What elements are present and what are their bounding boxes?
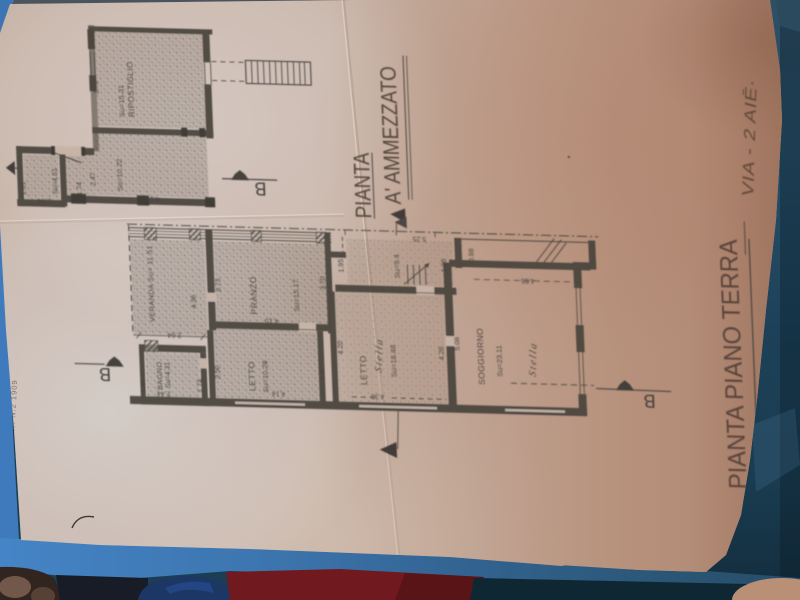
- svg-text:Su=4.31: Su=4.31: [164, 362, 172, 389]
- svg-text:Su=10.28: Su=10.28: [260, 360, 270, 393]
- svg-text:1.86: 1.86: [441, 259, 449, 273]
- svg-text:2.47: 2.47: [90, 172, 98, 186]
- svg-text:1.81: 1.81: [140, 379, 148, 393]
- svg-text:B: B: [643, 391, 656, 411]
- svg-text:4.14: 4.14: [272, 390, 286, 397]
- svg-text:4.20: 4.20: [337, 341, 345, 355]
- svg-text:5.08: 5.08: [454, 337, 462, 351]
- svg-text:4.26: 4.26: [439, 346, 447, 360]
- svg-text:2.47: 2.47: [319, 366, 327, 380]
- svg-text:4.15: 4.15: [265, 317, 279, 324]
- svg-text:Su=15.31: Su=15.31: [116, 85, 126, 118]
- svg-text:Stella: Stella: [528, 340, 540, 378]
- svg-text:1.74: 1.74: [197, 379, 205, 393]
- svg-text:Su=23.11: Su=23.11: [494, 345, 504, 377]
- svg-text:Su=18.48: Su=18.48: [389, 345, 399, 378]
- svg-text:2.44: 2.44: [37, 197, 51, 204]
- svg-text:4.55: 4.55: [521, 277, 535, 284]
- svg-text:4.36: 4.36: [191, 295, 199, 309]
- svg-text:1.74: 1.74: [76, 182, 84, 196]
- svg-text:PRANZO: PRANZO: [248, 276, 260, 315]
- svg-text:3.70: 3.70: [93, 80, 101, 94]
- svg-text:Su=9.4: Su=9.4: [392, 254, 402, 278]
- svg-text:B: B: [99, 364, 112, 384]
- svg-text:1.61: 1.61: [20, 181, 28, 195]
- svg-text:4.36: 4.36: [371, 392, 385, 399]
- svg-text:Stella: Stella: [374, 336, 386, 374]
- svg-text:0.98: 0.98: [469, 248, 477, 262]
- svg-text:B: B: [254, 178, 267, 198]
- svg-text:3.70: 3.70: [320, 276, 328, 290]
- svg-text:LETTO: LETTO: [246, 361, 257, 391]
- svg-text:Su=15.17: Su=15.17: [291, 279, 301, 312]
- svg-text:VIA - 2 AIĒ·: VIA - 2 AIĒ·: [739, 77, 760, 199]
- svg-text:2.44: 2.44: [157, 390, 171, 397]
- svg-text:2.64: 2.64: [167, 331, 181, 338]
- svg-text:Su=10.22: Su=10.22: [114, 159, 124, 192]
- svg-text:3.73: 3.73: [215, 278, 223, 292]
- svg-text:1.95: 1.95: [338, 259, 346, 273]
- svg-text:4.14: 4.14: [146, 195, 160, 202]
- svg-text:BAGNO: BAGNO: [154, 361, 164, 390]
- svg-text:5.25: 5.25: [412, 235, 426, 242]
- svg-text:Su=4.51: Su=4.51: [52, 168, 60, 195]
- svg-text:LETTO: LETTO: [358, 355, 369, 385]
- svg-text:2.50: 2.50: [215, 365, 223, 379]
